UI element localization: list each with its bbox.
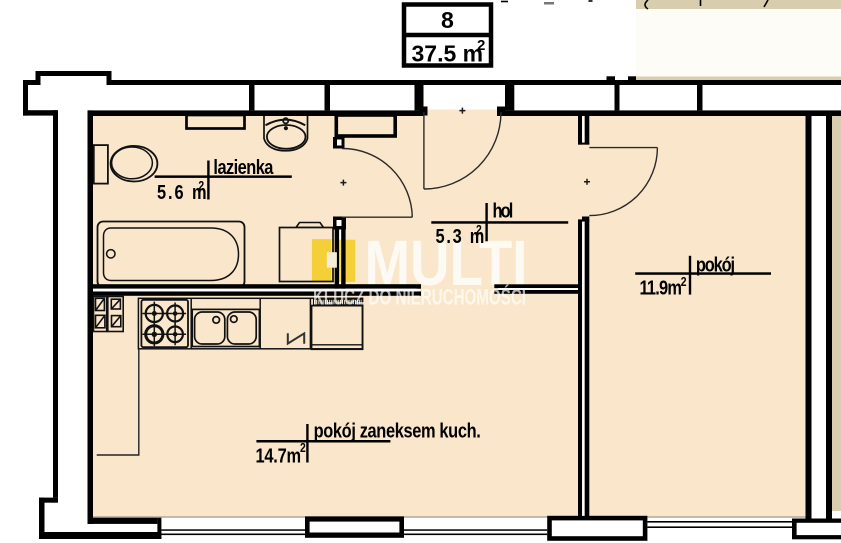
svg-text:pokój zaneksem kuch.: pokój zaneksem kuch.	[314, 419, 481, 442]
svg-text:2: 2	[198, 179, 204, 193]
svg-text:14.7m: 14.7m	[256, 444, 302, 467]
svg-text:2: 2	[681, 275, 687, 289]
svg-text:pokój: pokój	[696, 253, 735, 276]
svg-text:hol: hol	[492, 199, 513, 222]
svg-text:KLUCZ DO NIERUCHOMOŚCI: KLUCZ DO NIERUCHOMOŚCI	[313, 284, 526, 310]
svg-text:8: 8	[441, 7, 454, 33]
svg-text:2: 2	[477, 37, 485, 54]
svg-text:lazienka: lazienka	[213, 155, 274, 178]
svg-text:2: 2	[476, 223, 482, 237]
svg-text:37.5 m: 37.5 m	[412, 41, 484, 67]
svg-text:2: 2	[300, 441, 306, 455]
svg-text:11.9m: 11.9m	[640, 276, 682, 299]
